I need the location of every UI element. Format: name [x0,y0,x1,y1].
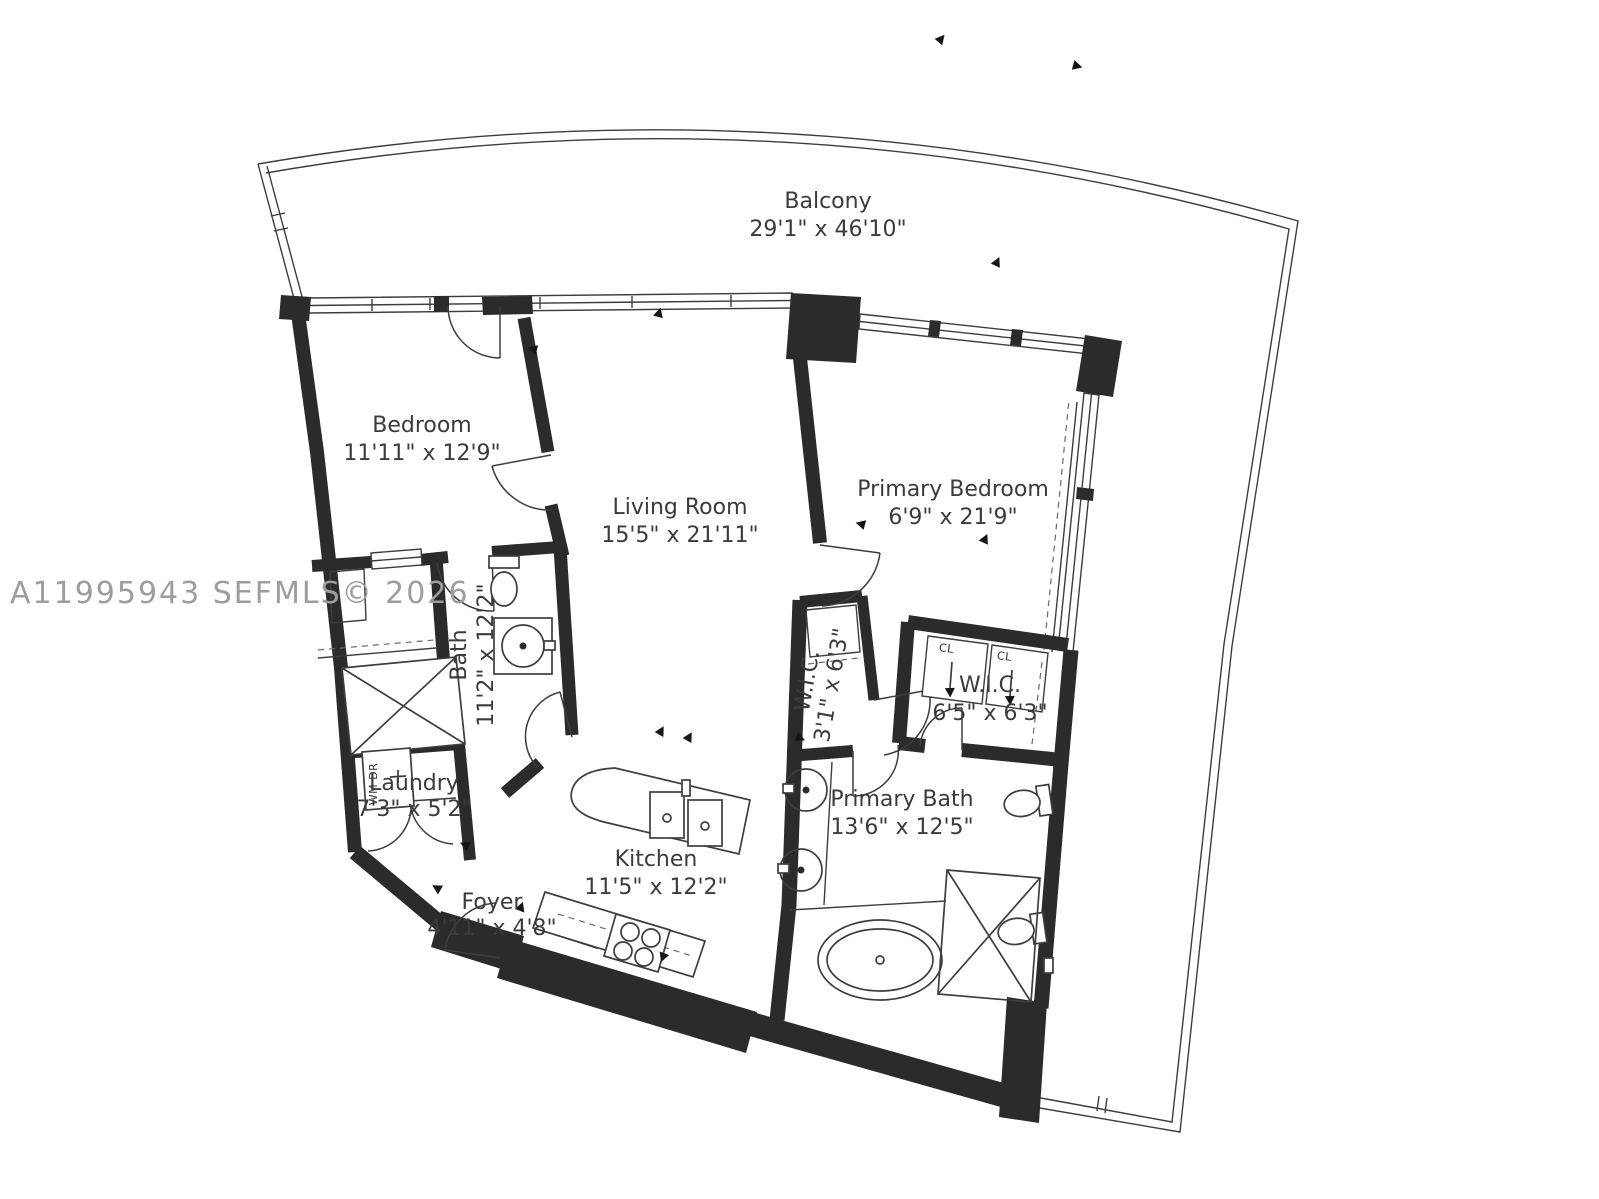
kitchen-fixtures [533,768,750,977]
room-label-primary-bath: Primary Bath13'6" x 12'5" [830,787,973,840]
room-label-living-room: Living Room15'5" x 21'11" [601,495,758,548]
kitchen-sink-right [688,800,722,846]
room-label-kitchen: Kitchen11'5" x 12'2" [584,847,727,900]
mls-watermark: A11995943 SEFMLS© 2026 [10,576,470,611]
room-label-balcony: Balcony29'1" x 46'10" [749,189,906,242]
closet-cl-label-left: CL [938,641,955,656]
window-mullion [434,296,449,312]
bedroom-door [492,455,553,510]
floor-plan-page: A11995943 SEFMLS© 2026 WM DR CL CL Balco… [0,0,1599,1199]
room-label-bedroom: Bedroom11'11" x 12'9" [343,413,500,466]
room-label-foyer: Foyer4'11" x 4'8" [427,890,556,941]
floor-plan-drawing: A11995943 SEFMLS© 2026 WM DR CL CL Balco… [0,0,1599,1199]
room-label-primary-bedroom: Primary Bedroom6'9" x 21'9" [857,477,1049,530]
room-label-laundry: Laundry7'3" x 5'2" [356,771,471,822]
primary-toilet-icon [1002,785,1053,821]
toilet-tank [489,556,519,568]
closet-cl-label-right: CL [996,649,1013,664]
bathtub-icon [818,920,942,1000]
kitchen-sink-left [650,792,684,838]
